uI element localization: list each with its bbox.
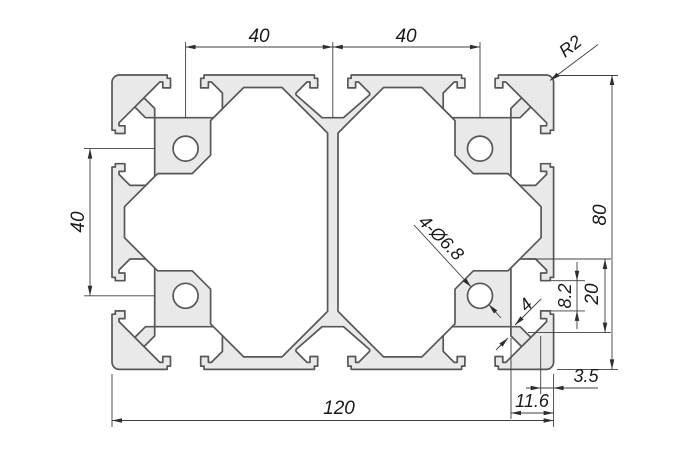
profile-cross-section-drawing: 40404080120208.23.511.644-Ø6.8R2 xyxy=(0,0,694,450)
arrowhead xyxy=(603,323,608,333)
arrowhead xyxy=(186,45,196,50)
dim-width-120: 120 xyxy=(323,398,355,419)
arrowhead xyxy=(610,75,615,85)
arrowhead xyxy=(88,286,93,296)
arrowhead xyxy=(544,411,554,416)
arrowhead xyxy=(610,359,615,369)
arrowhead xyxy=(323,45,333,50)
dim-left-40: 40 xyxy=(68,211,89,233)
drawing-canvas: 40404080120208.23.511.644-Ø6.8R2 xyxy=(0,0,694,450)
dim-top-left-40: 40 xyxy=(248,26,270,47)
arrowhead xyxy=(88,149,93,159)
hole-bottom-right xyxy=(468,283,493,308)
dim-slot-opening-8-2: 8.2 xyxy=(555,283,575,308)
dim-top-right-40: 40 xyxy=(395,26,417,47)
arrowhead xyxy=(333,45,343,50)
dim-slot-inner-20: 20 xyxy=(582,283,603,306)
arrowhead xyxy=(603,259,608,269)
dim-wall-3-5: 3.5 xyxy=(573,366,599,386)
hole-top-left xyxy=(173,136,198,161)
dim-wall-4: 4 xyxy=(515,294,536,315)
arrowhead xyxy=(544,418,554,423)
arrowhead xyxy=(575,271,580,281)
arrowhead xyxy=(531,386,541,391)
arrowhead xyxy=(575,311,580,321)
arrowhead xyxy=(470,45,480,50)
hole-top-right xyxy=(468,136,493,161)
arrowhead xyxy=(112,418,122,423)
arrowhead xyxy=(511,411,521,416)
dim-slot-depth-11-6: 11.6 xyxy=(515,391,550,411)
dim-height-80: 80 xyxy=(590,204,611,226)
arrowhead xyxy=(554,386,564,391)
hole-bottom-left xyxy=(173,283,198,308)
